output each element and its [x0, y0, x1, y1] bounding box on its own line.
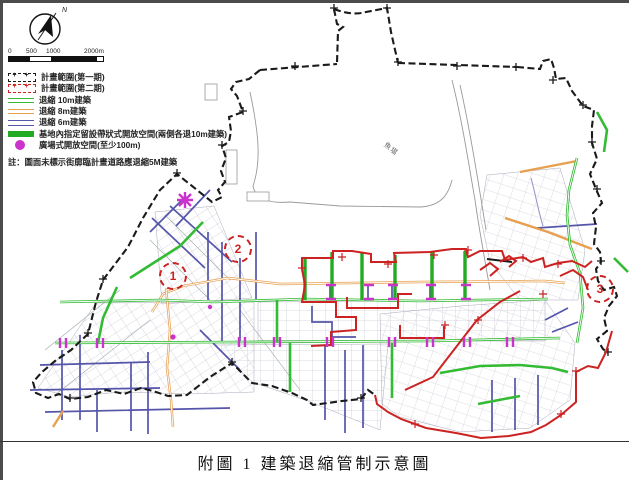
- setback6-swatch: [8, 120, 34, 125]
- legend-item-setback6: 退縮 6m建築: [8, 117, 258, 128]
- legend-item-band-open-space: 基地內指定留設帶狀式開放空間(兩側各退10m建築): [8, 128, 258, 139]
- plaza-dot-swatch: [15, 140, 25, 150]
- phase2-swatch: [8, 84, 36, 93]
- legend-item-phase1: 計畫範圍(第一期): [8, 72, 258, 83]
- figure-page: N 0 500 1000 2000m 計畫範圍(第一期): [0, 0, 629, 480]
- legend-label: 計畫範圍(第一期): [41, 73, 105, 82]
- scale-tick: 2000m: [84, 48, 104, 55]
- scale-tick: 500: [26, 48, 37, 55]
- scale-bar-rule: [8, 56, 104, 62]
- zone-marker-3: 3: [586, 275, 614, 303]
- legend-item-plaza: 廣場式開放空間(至少100m): [8, 140, 258, 151]
- north-label: N: [62, 7, 67, 14]
- setback-map: N 0 500 1000 2000m 計畫範圍(第一期): [0, 0, 629, 441]
- legend-label: 退縮 6m建築: [39, 118, 87, 127]
- figure-caption: 附圖 1 建築退縮管制示意圖: [197, 450, 431, 474]
- caption-bar: 附圖 1 建築退縮管制示意圖: [0, 441, 629, 480]
- legend-item-setback8: 退縮 8m建築: [8, 106, 258, 117]
- phase1-swatch: [8, 73, 36, 82]
- legend-label: 退縮 10m建築: [39, 96, 91, 105]
- legend-item-phase2: 計畫範圍(第二期): [8, 83, 258, 94]
- plaza-swatch-holder: [8, 140, 34, 150]
- legend-label: 退縮 8m建築: [39, 107, 87, 116]
- zone-marker-2: 2: [224, 235, 252, 263]
- zone-marker-1: 1: [159, 262, 187, 290]
- north-arrow: N: [26, 7, 72, 47]
- scale-tick: 1000: [46, 48, 60, 55]
- legend: 計畫範圍(第一期) 計畫範圍(第二期) 退縮 10m建築 退縮 8m建築 退縮 …: [8, 72, 258, 151]
- setback8-swatch: [8, 109, 34, 114]
- scale-bar: 0 500 1000 2000m: [8, 48, 104, 62]
- scale-tick: 0: [8, 48, 12, 55]
- setback10-swatch: [8, 98, 34, 103]
- legend-item-setback10: 退縮 10m建築: [8, 95, 258, 106]
- map-note: 註：圖面未標示街廓臨計畫道路應退縮5M建築: [8, 156, 177, 168]
- legend-label: 計畫範圍(第二期): [41, 84, 105, 93]
- map-drawing: [0, 0, 629, 441]
- legend-label: 廣場式開放空間(至少100m): [39, 141, 140, 150]
- legend-label: 基地內指定留設帶狀式開放空間(兩側各退10m建築): [39, 130, 227, 139]
- band-open-space-swatch: [8, 131, 34, 137]
